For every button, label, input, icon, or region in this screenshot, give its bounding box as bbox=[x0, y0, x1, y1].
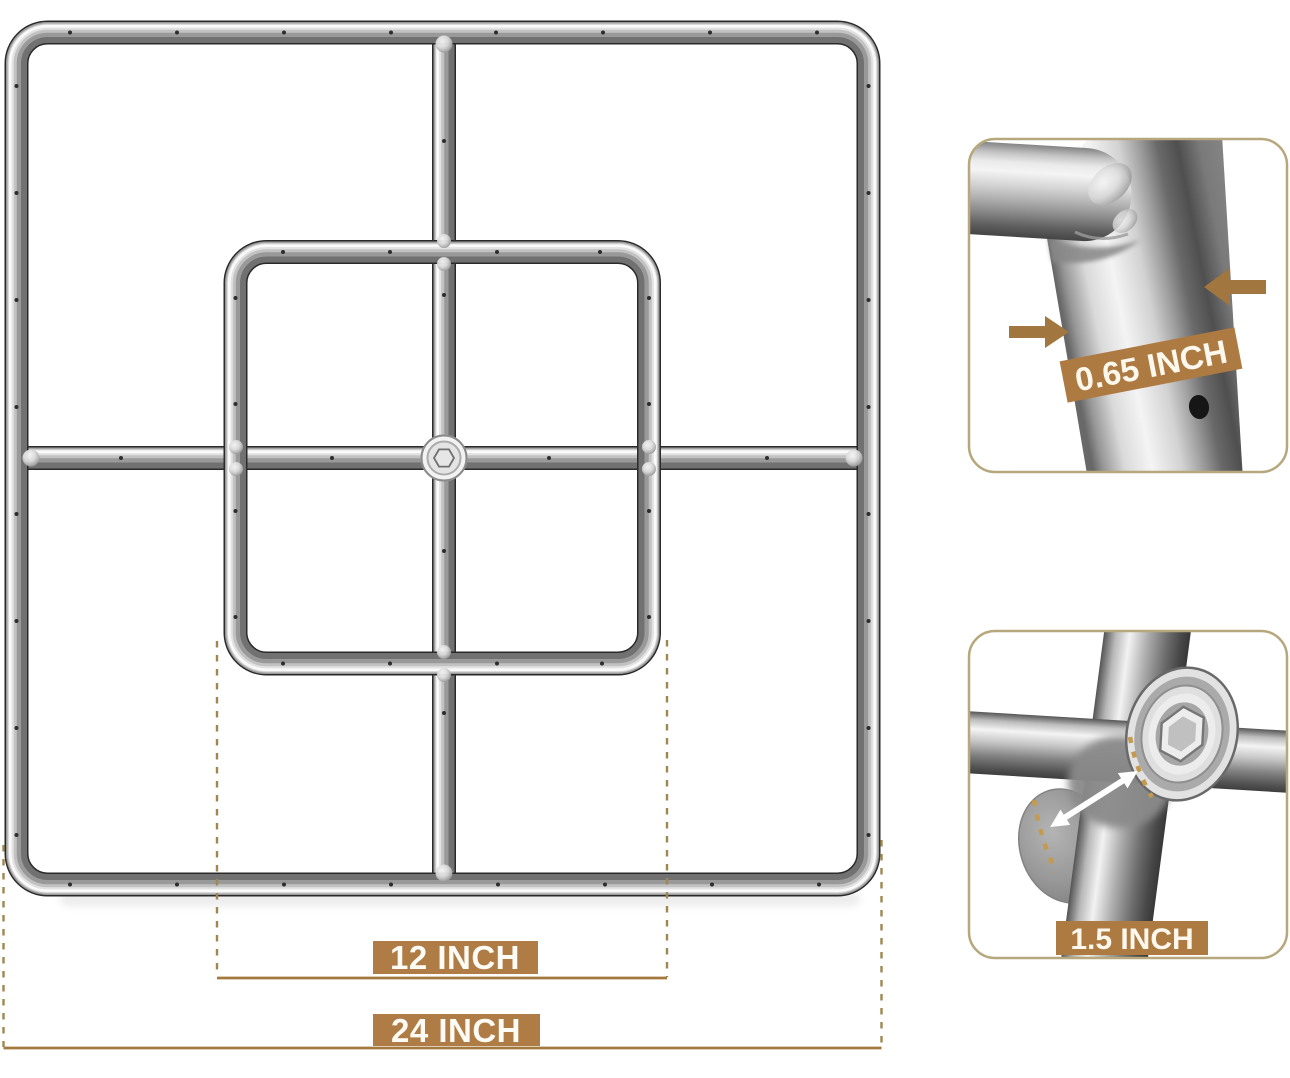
svg-text:1.5 INCH: 1.5 INCH bbox=[1070, 923, 1193, 956]
svg-text:12 INCH: 12 INCH bbox=[390, 939, 520, 976]
svg-text:24 INCH: 24 INCH bbox=[391, 1012, 521, 1049]
